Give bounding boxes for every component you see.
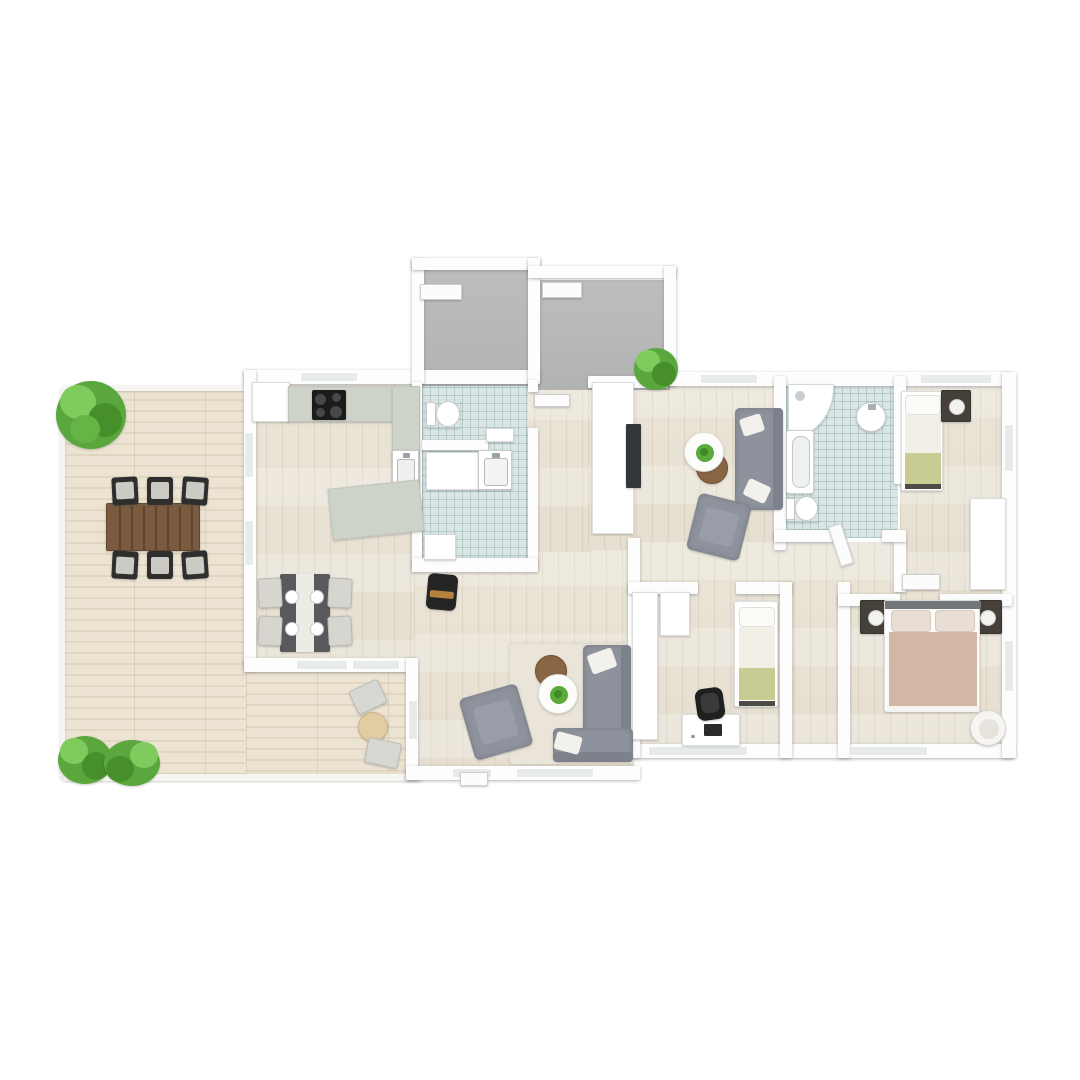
- bedroom2-wardrobe-top: [660, 592, 690, 636]
- seat: [185, 481, 204, 499]
- bath1-divider-wall: [422, 440, 488, 450]
- storage-left-wall: [412, 258, 424, 384]
- seat: [472, 698, 519, 745]
- burner: [332, 393, 341, 402]
- faucet: [403, 453, 410, 458]
- laptop: [704, 724, 722, 736]
- bath1-door: [534, 394, 570, 407]
- front-door: [542, 282, 582, 298]
- bath1-right-wall: [528, 428, 538, 568]
- black-stool: [425, 573, 458, 611]
- runner: [296, 574, 314, 652]
- living-sofa-vertical: [583, 645, 631, 737]
- seat: [116, 557, 135, 575]
- seat: [116, 482, 135, 500]
- dining-chair-2: [257, 615, 283, 646]
- blanket: [739, 668, 775, 700]
- outdoor-chair-5: [147, 551, 173, 579]
- mouse: [691, 735, 695, 738]
- pillow: [905, 395, 941, 415]
- seat: [151, 482, 169, 499]
- bath1-right-wall-top: [528, 380, 538, 392]
- table-plant-core: [700, 448, 708, 456]
- leaf: [130, 742, 158, 768]
- burner: [330, 406, 342, 418]
- deck-plant-small-2: [104, 740, 160, 786]
- plate: [310, 622, 324, 636]
- table-plant-core: [554, 690, 562, 698]
- bath1-shelf: [486, 428, 514, 442]
- pillow: [742, 478, 771, 504]
- outdoor-chair-4: [111, 550, 138, 579]
- leaf: [70, 415, 100, 443]
- bath1-vanity: [426, 452, 480, 490]
- master-egg-chair: [970, 710, 1006, 746]
- planks: [109, 506, 199, 550]
- floor-plan-image: [0, 0, 1080, 1080]
- bath2-bottom-wall-right: [882, 530, 906, 542]
- living-coffee-table: [538, 674, 578, 714]
- master-bed: [884, 600, 980, 712]
- shower-head: [795, 391, 805, 401]
- pillow: [586, 647, 617, 675]
- bathtub: [786, 430, 814, 494]
- outdoor-chair-1: [111, 476, 138, 505]
- living-left-window: [408, 700, 418, 740]
- bedroom1-wardrobe: [970, 498, 1006, 590]
- chair-seat: [700, 692, 721, 714]
- plate: [310, 590, 324, 604]
- dining-chair-3: [327, 577, 353, 608]
- bowl: [436, 401, 460, 427]
- leaf: [652, 362, 676, 386]
- master-left-wall: [838, 582, 850, 758]
- living-sofa-chaise: [553, 728, 633, 762]
- outdoor-chair-6: [181, 550, 209, 580]
- deck-door-leaf: [460, 772, 488, 786]
- bath1-bottom-wall: [412, 558, 538, 572]
- master-right-window: [1004, 640, 1014, 692]
- bowl: [795, 496, 818, 521]
- bath1-toilet: [426, 400, 460, 428]
- entry-plant: [634, 348, 678, 390]
- fridge: [252, 382, 290, 422]
- bath2-top-window: [700, 374, 758, 384]
- bedroom2-bed: [734, 601, 778, 707]
- lamp: [980, 610, 996, 626]
- kitchen-top-window: [300, 372, 358, 382]
- sheet: [739, 627, 775, 671]
- entry-top-wall: [528, 266, 676, 278]
- bedroom2-office-chair: [694, 686, 726, 722]
- cooktop: [312, 390, 346, 420]
- dining-table: [280, 574, 330, 652]
- tv-coffee-table: [684, 432, 724, 472]
- bedroom2-closet: [632, 592, 658, 740]
- backrest: [553, 752, 633, 762]
- burner: [315, 394, 326, 405]
- right-wing-bottom-window-1: [648, 746, 748, 756]
- bath1-sink: [478, 450, 512, 490]
- bath2-round-sink: [856, 402, 886, 432]
- bedroom1-bed: [901, 391, 943, 491]
- sheet: [905, 415, 941, 457]
- master-door: [902, 574, 940, 590]
- dining-bottom-window-1: [296, 660, 348, 670]
- seat: [698, 506, 739, 547]
- bedroom2-right-wall: [780, 582, 792, 758]
- kitchen-peninsula: [328, 479, 425, 540]
- bedroom1-top-window: [920, 374, 992, 384]
- seat: [185, 556, 204, 574]
- outdoor-chair-3: [181, 476, 209, 506]
- outdoor-chair-2: [147, 477, 173, 505]
- seat: [151, 557, 169, 574]
- chair-cushion: [979, 719, 999, 739]
- pillow: [739, 607, 775, 627]
- dining-bottom-window-2: [352, 660, 400, 670]
- right-wing-bottom-window-2: [848, 746, 928, 756]
- deck-rim-left: [60, 388, 65, 778]
- footboard: [739, 701, 775, 706]
- tv: [626, 424, 641, 488]
- corridor-floor: [534, 382, 592, 552]
- basin: [484, 458, 508, 486]
- tank: [426, 402, 436, 426]
- bedroom1-right-window: [1004, 424, 1014, 472]
- burner: [316, 408, 325, 417]
- lamp: [868, 610, 884, 626]
- footboard: [905, 484, 941, 489]
- storage-top-wall: [412, 258, 540, 270]
- leaf: [106, 756, 134, 782]
- lamp: [949, 399, 965, 415]
- plate: [285, 590, 299, 604]
- storage-entry-door: [420, 284, 462, 300]
- left-wall-window-1: [244, 432, 254, 478]
- tv-sofa: [735, 408, 783, 510]
- frame-foot: [887, 706, 979, 712]
- tank: [786, 498, 795, 520]
- pillow: [891, 610, 931, 632]
- bath1-corner-unit: [424, 534, 456, 560]
- bath2-toilet: [786, 496, 818, 522]
- headboard: [885, 601, 981, 609]
- blanket: [889, 632, 977, 706]
- outdoor-dining-table: [106, 503, 200, 551]
- deck-plant-large: [56, 381, 126, 449]
- dining-chair-4: [327, 615, 353, 646]
- backrest: [773, 408, 783, 510]
- pillow: [739, 413, 765, 437]
- bedroom1-nightstand: [941, 390, 971, 422]
- stripe: [430, 590, 455, 599]
- pillow: [935, 610, 975, 632]
- living-deck-door-glass: [516, 768, 594, 778]
- left-wall-window-2: [244, 520, 254, 566]
- plate: [285, 622, 299, 636]
- backrest: [621, 645, 631, 737]
- faucet: [868, 404, 876, 410]
- faucet: [492, 453, 500, 458]
- blanket: [905, 453, 941, 485]
- tub-basin: [792, 436, 810, 488]
- dining-chair-1: [257, 577, 283, 608]
